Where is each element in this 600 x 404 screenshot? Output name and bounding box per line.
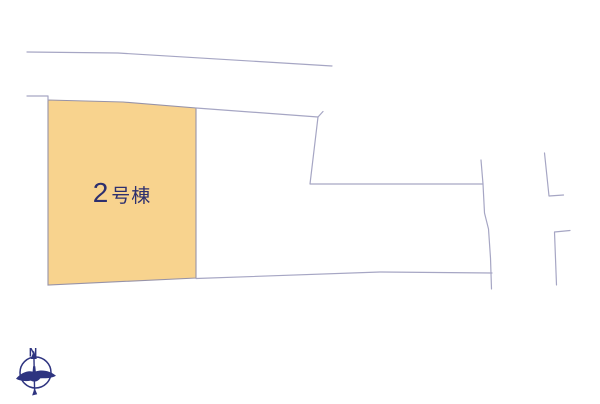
site-plan-canvas: N 2号棟	[0, 0, 600, 404]
boundary-line-south	[196, 272, 492, 279]
site-plan-drawing: N	[0, 0, 600, 404]
boundary-line-east-step	[310, 117, 483, 184]
boundary-line-east-upper	[196, 108, 318, 117]
boundary-line-northwest-corner	[27, 96, 48, 100]
parcel-lot-2	[48, 100, 196, 285]
boundary-line-right-vertical	[481, 160, 492, 289]
boundary-tick-mark	[318, 112, 323, 118]
compass-needle-tail	[32, 388, 37, 396]
boundary-line-north-road	[27, 52, 332, 66]
boundary-mark-upper-right	[545, 153, 564, 196]
boundary-mark-lower-right	[555, 231, 571, 286]
compass: N	[16, 348, 56, 396]
